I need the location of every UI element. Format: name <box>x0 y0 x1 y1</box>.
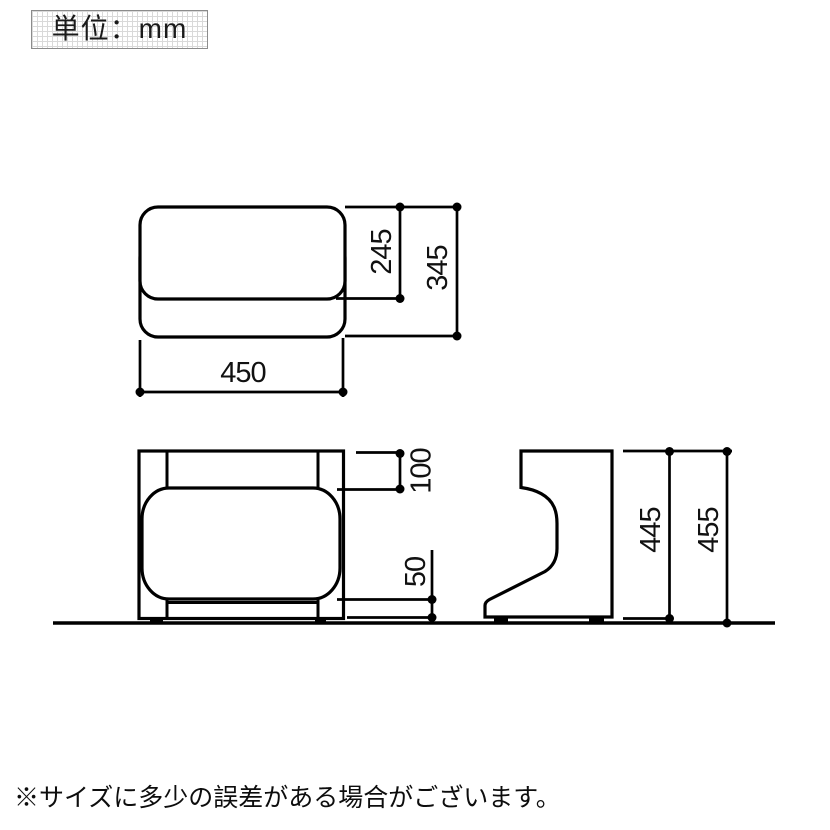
dim-dot <box>665 447 674 456</box>
front-view <box>139 451 344 623</box>
dim-dot <box>428 595 437 604</box>
top-view-seat-outline <box>140 207 345 299</box>
dim-dot <box>136 388 145 397</box>
dimension-drawing: 245 345 450 100 50 <box>0 0 830 830</box>
dim-dot <box>339 388 348 397</box>
dim-dot <box>453 203 462 212</box>
dim-label-total-height: 455 <box>693 507 725 552</box>
dim-label-frame-height: 445 <box>635 507 667 552</box>
dim-label-back-height: 100 <box>406 448 438 493</box>
dim-label-total-depth: 345 <box>422 245 454 290</box>
dim-dot <box>396 294 405 303</box>
dim-dot <box>453 332 462 341</box>
side-view-profile-outline <box>485 451 612 617</box>
dim-label-width: 450 <box>220 357 265 389</box>
dim-dot <box>396 203 405 212</box>
side-view <box>485 451 612 623</box>
dim-label-base-height: 50 <box>400 557 432 587</box>
front-view-cushion-outline <box>142 488 340 599</box>
dim-dot <box>396 485 405 494</box>
footer-note: ※サイズに多少の誤差がある場合がございます。 <box>14 783 561 813</box>
dim-dot <box>723 447 732 456</box>
dim-dot <box>428 613 437 622</box>
top-view <box>140 207 345 337</box>
dim-label-seat-depth: 245 <box>366 229 398 274</box>
dim-dot <box>396 449 405 458</box>
